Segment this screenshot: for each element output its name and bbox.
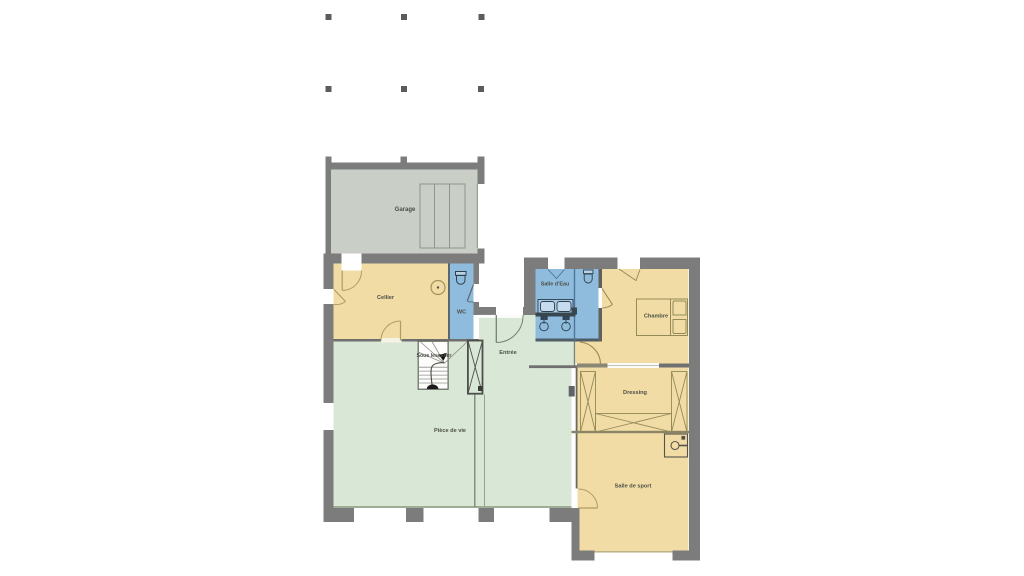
svg-text:Dressing: Dressing [623,390,648,396]
svg-text:Cellier: Cellier [377,295,395,301]
svg-text:Garage: Garage [395,207,416,213]
svg-text:Sous lescalier: Sous lescalier [417,353,452,359]
svg-text:WC: WC [457,310,466,316]
svg-text:Salle de sport: Salle de sport [615,484,652,490]
svg-text:Pièce de vie: Pièce de vie [434,428,466,434]
svg-text:Salle d'Eau: Salle d'Eau [541,282,570,288]
svg-text:Entrée: Entrée [499,350,516,356]
svg-text:Chambre: Chambre [644,314,668,320]
